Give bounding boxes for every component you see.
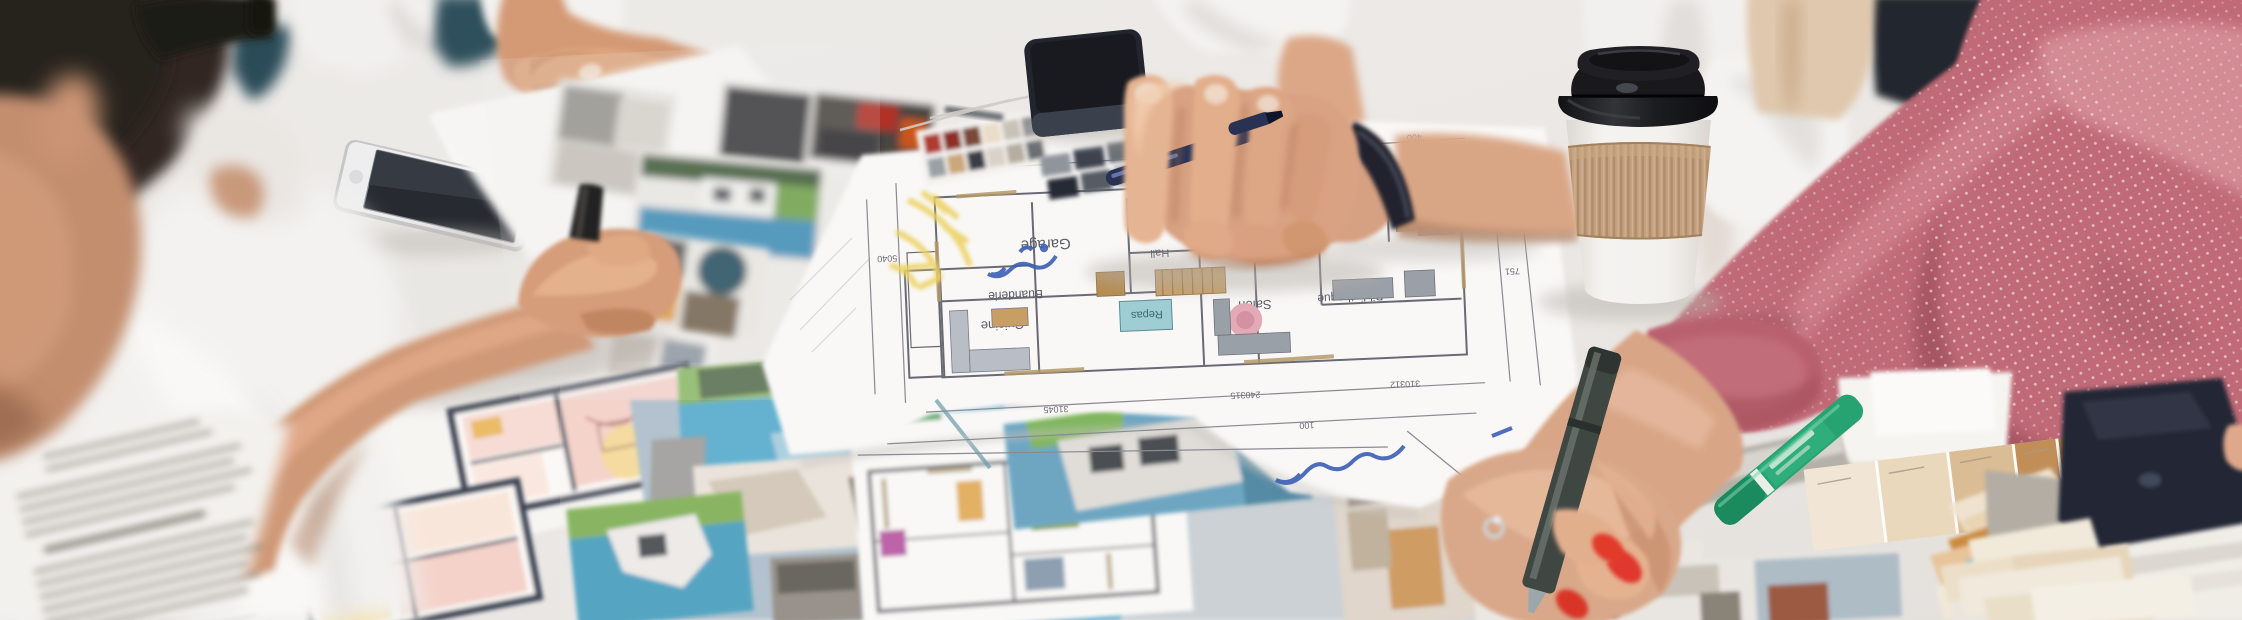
svg-text:Buanderie: Buanderie xyxy=(988,287,1044,303)
svg-text:31045: 31045 xyxy=(1043,404,1068,415)
svg-text:240315: 240315 xyxy=(1230,389,1260,400)
svg-text:5040: 5040 xyxy=(877,253,897,264)
svg-text:751: 751 xyxy=(1505,266,1520,277)
svg-text:310312: 310312 xyxy=(1390,379,1420,390)
svg-text:Repas: Repas xyxy=(1130,308,1163,321)
svg-text:100: 100 xyxy=(1299,420,1314,431)
